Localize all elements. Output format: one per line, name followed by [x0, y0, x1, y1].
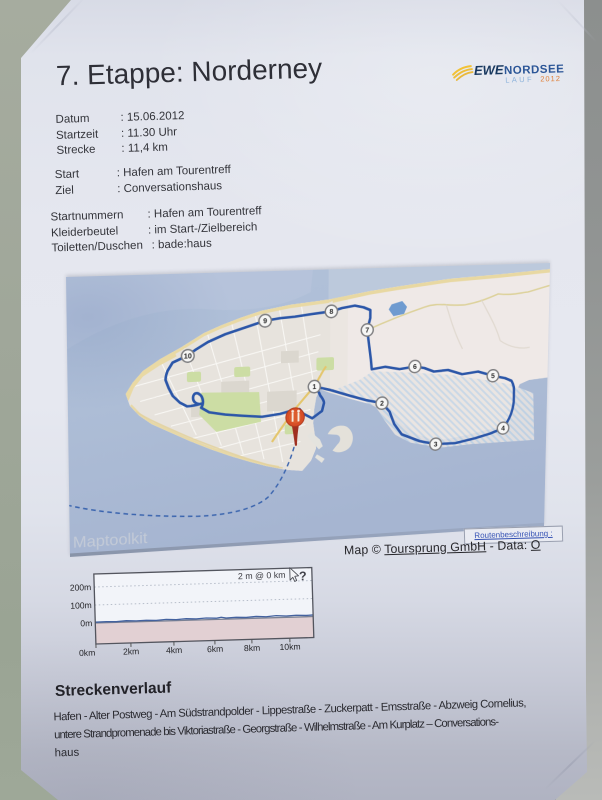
- svg-text:2 m @ 0 km: 2 m @ 0 km: [238, 570, 286, 581]
- svg-text:EWE: EWE: [474, 62, 504, 78]
- svg-text:6: 6: [413, 363, 417, 371]
- svg-text:4km: 4km: [166, 645, 183, 655]
- svg-text:0km: 0km: [79, 648, 96, 658]
- svg-text:8km: 8km: [244, 643, 261, 653]
- svg-text:10: 10: [184, 352, 192, 361]
- svg-text:10km: 10km: [279, 641, 300, 652]
- svg-text:2012: 2012: [540, 74, 561, 84]
- svg-text:100m: 100m: [70, 600, 92, 611]
- svg-text:0m: 0m: [80, 618, 92, 628]
- svg-text:2: 2: [380, 399, 384, 407]
- svg-text:?: ?: [299, 569, 307, 583]
- svg-text:2km: 2km: [123, 646, 140, 656]
- svg-text:7: 7: [365, 326, 369, 335]
- svg-text:3: 3: [434, 440, 438, 448]
- svg-text:LAUF: LAUF: [505, 75, 534, 85]
- svg-text:6km: 6km: [207, 644, 224, 654]
- svg-text:9: 9: [263, 317, 267, 326]
- svg-text:200m: 200m: [70, 582, 92, 593]
